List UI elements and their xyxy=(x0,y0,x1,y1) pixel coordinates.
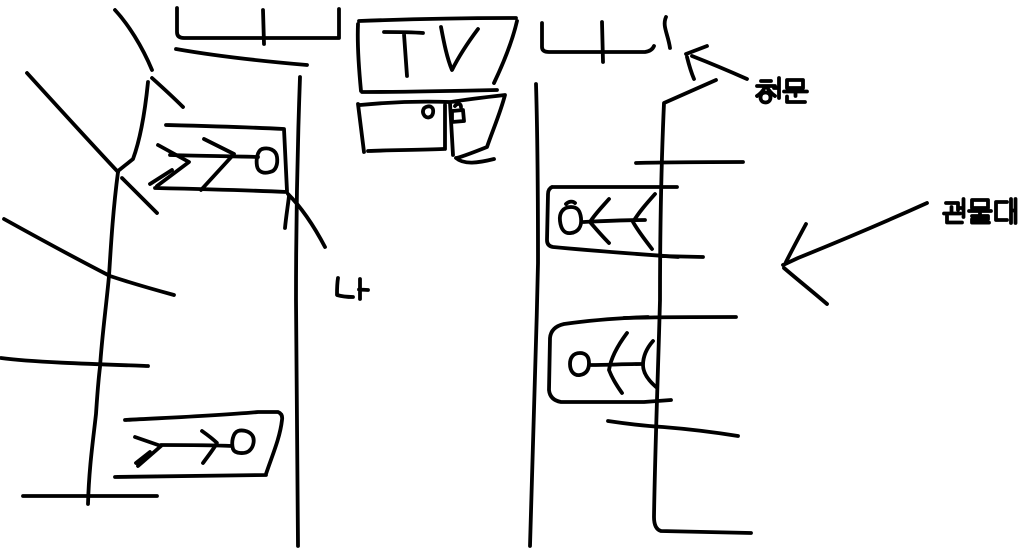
bed-left-bottom-group xyxy=(115,412,282,477)
window1-sill xyxy=(176,49,307,65)
window-top-right-group xyxy=(542,17,670,62)
wall-curve-top-left xyxy=(115,10,152,70)
window-annotation: 창문 xyxy=(686,46,807,106)
window1-tick xyxy=(263,10,264,44)
aisle-walls xyxy=(296,77,538,546)
right-wall-group xyxy=(608,80,751,533)
locker-annotation: 관물대 xyxy=(783,199,1016,304)
me-arrow-shaft xyxy=(288,194,325,247)
figure2-head xyxy=(232,430,253,453)
center-right-wall xyxy=(530,84,538,546)
figure1-legs xyxy=(150,145,189,186)
window2-tick xyxy=(602,22,603,62)
figure1-arms xyxy=(201,139,234,190)
wall-long-diagonal xyxy=(27,73,118,172)
figure2-legs xyxy=(135,437,161,466)
right-wall xyxy=(654,80,751,533)
window1-frame xyxy=(177,8,339,38)
tv-label-text: TV xyxy=(382,27,447,83)
window2-frame xyxy=(542,23,654,52)
right-wall-tick-4 xyxy=(608,421,738,436)
wall-upper-segment xyxy=(118,82,148,171)
wall-branch-diagonal xyxy=(152,78,183,107)
window-arrow-shaft xyxy=(692,56,747,79)
left-wall-main xyxy=(88,172,118,504)
bed-right-bottom-group xyxy=(549,317,671,402)
bed-left-top-group xyxy=(150,125,287,192)
vcr-knob-left xyxy=(423,106,433,117)
tv-letter-v xyxy=(441,27,478,70)
locker-arrow-barbs xyxy=(784,224,827,304)
figure4-legs xyxy=(643,341,656,387)
bed-left-top-frame xyxy=(155,125,287,192)
figure4-head xyxy=(570,353,589,375)
figure2-body xyxy=(161,445,232,446)
floor-diagonal xyxy=(4,219,174,295)
divider-left-mid xyxy=(1,358,148,366)
figure3-head xyxy=(560,202,581,234)
left-walls xyxy=(1,10,183,504)
bed-right-top-group xyxy=(547,187,678,257)
vcr-box xyxy=(358,102,450,152)
locker-arrow-shaft xyxy=(783,203,927,265)
window-top-left-group xyxy=(176,8,339,65)
center-left-wall xyxy=(296,77,300,546)
vcr-knob-right xyxy=(452,104,464,122)
room-sketch: TV 나 xyxy=(0,0,1022,548)
window2-frame-right xyxy=(665,17,670,48)
right-wall-tick-1 xyxy=(636,162,743,163)
figure1-head xyxy=(257,148,278,172)
me-arrow-barb xyxy=(285,196,289,228)
figure4-body xyxy=(591,364,641,365)
tv-group: TV xyxy=(358,18,517,163)
paint-canvas: TV 나 xyxy=(0,0,1022,548)
